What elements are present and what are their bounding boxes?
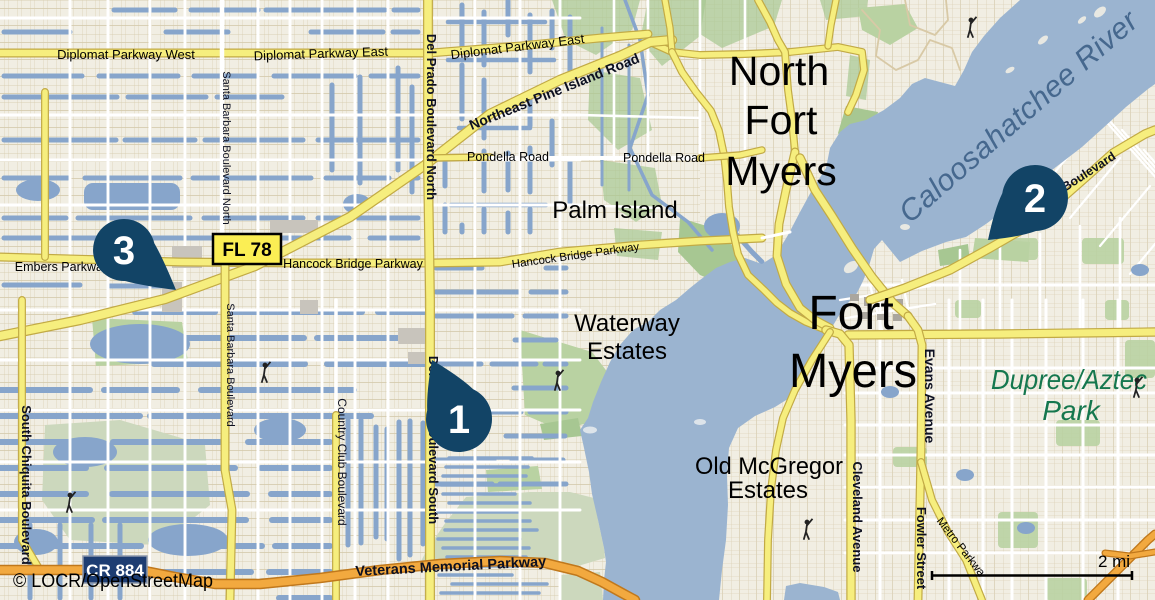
svg-text:Country Club Boulevard: Country Club Boulevard bbox=[335, 398, 349, 525]
svg-text:Park: Park bbox=[1042, 395, 1102, 426]
svg-text:3: 3 bbox=[113, 229, 135, 273]
svg-text:Diplomat Parkway West: Diplomat Parkway West bbox=[57, 47, 195, 62]
svg-text:Fowler Street: Fowler Street bbox=[914, 507, 929, 590]
svg-text:Pondella Road: Pondella Road bbox=[467, 150, 549, 164]
svg-text:South Chiquita Boulevard: South Chiquita Boulevard bbox=[19, 405, 34, 565]
svg-text:Dupree/Aztec: Dupree/Aztec bbox=[991, 364, 1147, 395]
svg-text:Del Prado Boulevard North: Del Prado Boulevard North bbox=[424, 34, 439, 200]
svg-text:Hancock Bridge Parkway: Hancock Bridge Parkway bbox=[283, 257, 423, 271]
svg-text:1: 1 bbox=[448, 398, 470, 442]
svg-text:2: 2 bbox=[1024, 177, 1046, 221]
svg-text:Santa Barbara Boulevard: Santa Barbara Boulevard bbox=[224, 303, 236, 427]
svg-text:Pondella Road: Pondella Road bbox=[623, 151, 705, 165]
svg-text:North: North bbox=[729, 48, 829, 94]
svg-text:Myers: Myers bbox=[725, 148, 837, 194]
svg-text:Fort: Fort bbox=[745, 97, 819, 143]
svg-text:Cleveland Avenue: Cleveland Avenue bbox=[850, 461, 865, 572]
svg-text:Fort: Fort bbox=[808, 287, 893, 340]
svg-text:FL 78: FL 78 bbox=[222, 240, 271, 261]
svg-text:Palm Island: Palm Island bbox=[552, 197, 677, 224]
svg-text:Waterway: Waterway bbox=[574, 310, 680, 337]
svg-text:Estates: Estates bbox=[728, 477, 808, 504]
svg-text:Myers: Myers bbox=[789, 345, 917, 398]
svg-text:Evans Avenue: Evans Avenue bbox=[922, 349, 938, 444]
svg-text:Santa Barbara Boulevard North: Santa Barbara Boulevard North bbox=[220, 71, 232, 224]
svg-text:Estates: Estates bbox=[587, 338, 667, 365]
svg-text:© LOCR/OpenStreetMap: © LOCR/OpenStreetMap bbox=[13, 571, 213, 592]
svg-text:Old McGregor: Old McGregor bbox=[695, 453, 843, 480]
svg-text:2 mi: 2 mi bbox=[1098, 552, 1130, 571]
